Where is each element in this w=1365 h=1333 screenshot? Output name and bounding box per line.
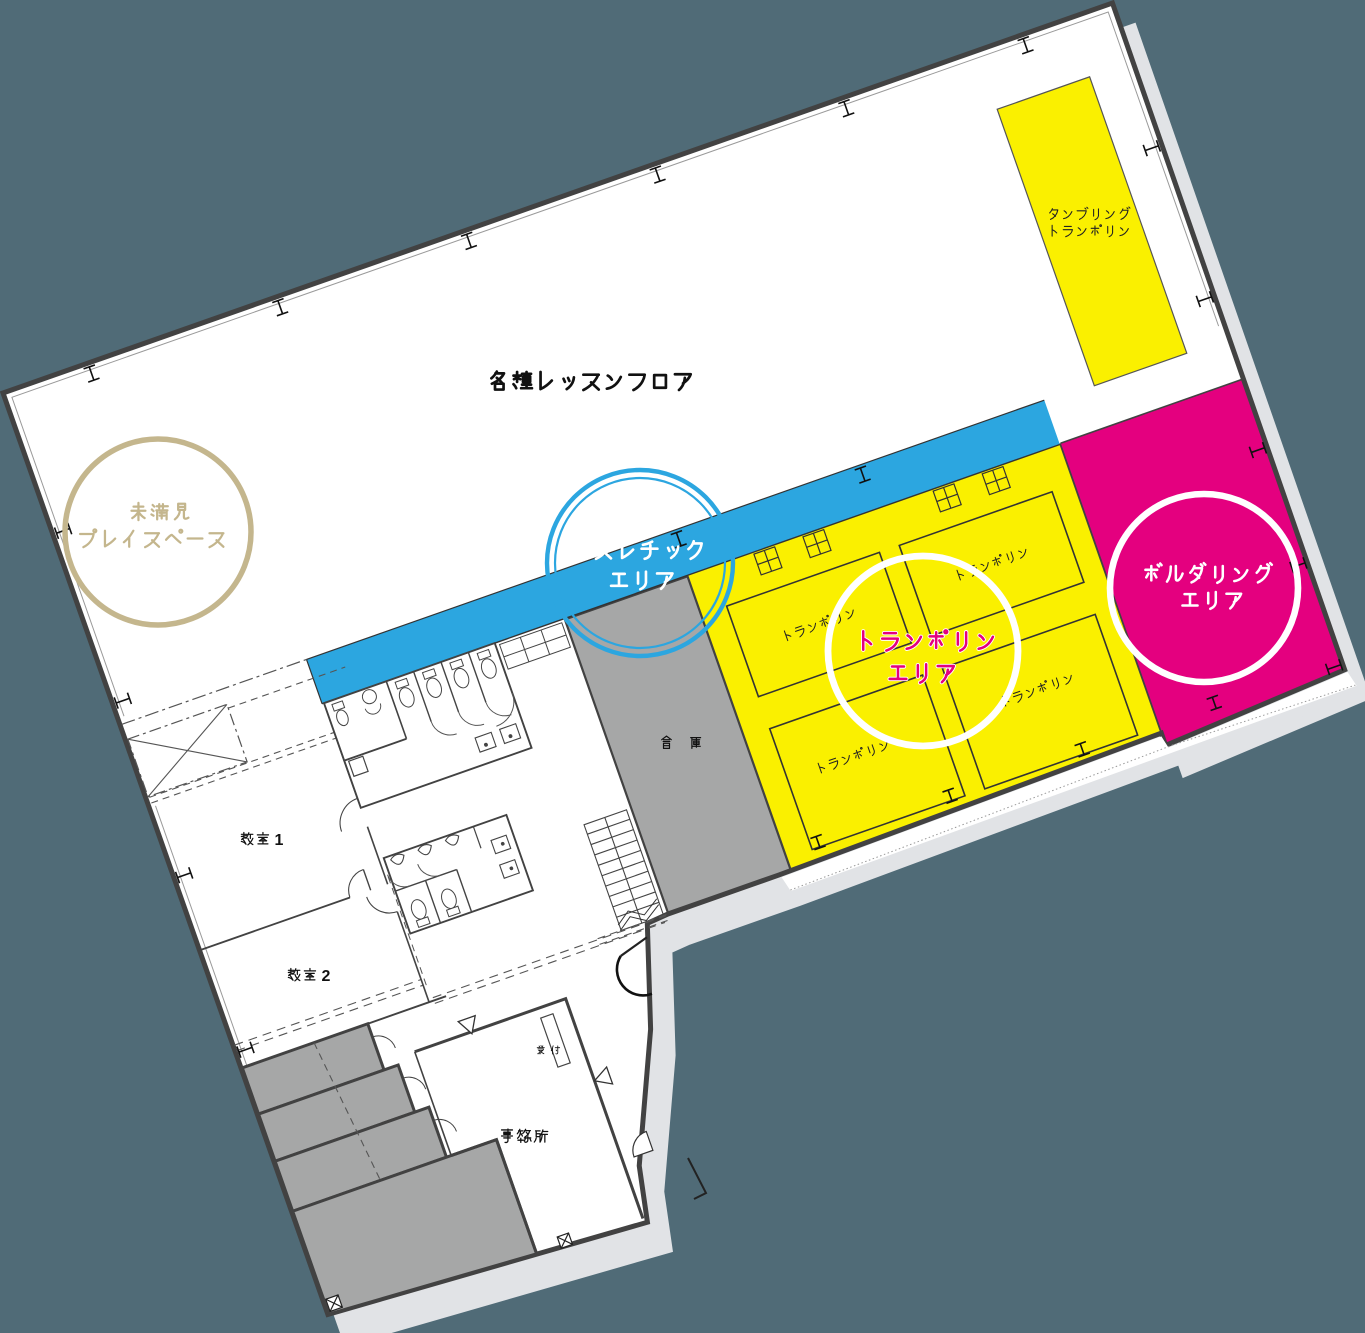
svg-text:2: 2 [322,968,331,985]
svg-text:1: 1 [275,832,284,849]
